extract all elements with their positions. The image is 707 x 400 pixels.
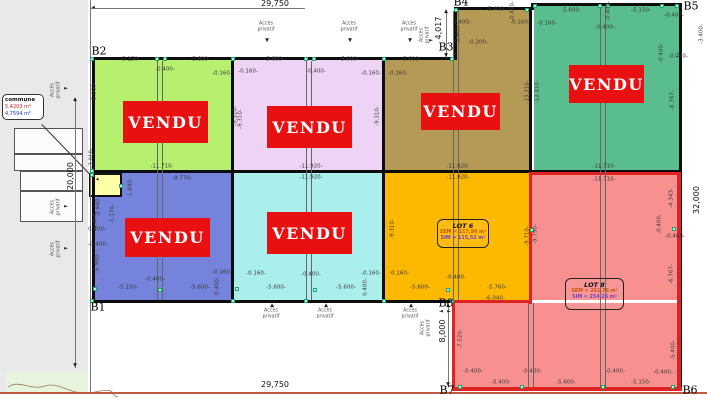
dimension-label: -11.920-: [446, 164, 469, 170]
access-label: Accès privatif: [50, 240, 61, 257]
dimension-label: -11.710-: [150, 164, 173, 170]
dimension-label: -0.400-: [653, 370, 673, 376]
boundary-line: [231, 59, 234, 302]
dimension-label: -5.400-: [486, 7, 506, 13]
access-label-line1: Accès: [400, 21, 417, 27]
boundary-point-label: B5: [683, 1, 698, 12]
dimension-label: -0.160-: [537, 21, 557, 27]
dimension-label: -5.600-: [266, 285, 286, 291]
survey-tick: [446, 288, 450, 292]
survey-tick: [304, 299, 308, 303]
dimension-label: -0.400-: [606, 1, 612, 21]
commune-name: commune: [5, 97, 41, 104]
dimension-label: -0.160-: [361, 271, 381, 277]
dimension-label: -5.400-: [671, 340, 677, 360]
direction-arrow-icon: ▲: [73, 98, 77, 103]
dimension-label: -5.600-: [339, 57, 359, 63]
direction-arrow-icon: ►: [64, 205, 68, 210]
dimension-label: -4.343-: [669, 188, 675, 208]
direction-arrow-icon: ►: [429, 39, 433, 44]
axis-line: [600, 6, 606, 387]
dimension-label: -0.160-: [361, 71, 381, 77]
access-label: Accès privatif: [316, 308, 333, 319]
dimension-label: -11.710-: [592, 164, 615, 170]
dimension-label: -9.790-: [533, 224, 539, 244]
vendu-label: VENDU: [267, 212, 352, 254]
access-label: Accès privatif: [262, 308, 279, 319]
access-label: Accès privatif: [420, 319, 431, 336]
dimension-label: -0.400-: [510, 1, 516, 21]
dimension-label: -0.400-: [446, 275, 466, 281]
direction-arrow-icon: ▲: [409, 304, 413, 309]
survey-tick: [520, 385, 524, 389]
lot8-boundary-line: [677, 172, 681, 391]
dimension-label: -0.160-: [510, 20, 530, 26]
boundary-point-label: B4: [453, 0, 468, 8]
dimension-label: -0.400-: [664, 13, 684, 19]
overall-dimension-label: 29,750: [261, 381, 289, 389]
survey-tick: [525, 8, 529, 12]
direction-arrow-icon: ◄: [91, 6, 95, 11]
access-label-line2: privatif: [56, 198, 62, 215]
dimension-label: -0.160-: [238, 69, 258, 75]
survey-tick: [93, 287, 97, 291]
access-label-line1: Accès: [50, 81, 56, 98]
dimension-label: -0.160-: [212, 270, 232, 276]
dimension-label: -1.170-: [110, 204, 116, 224]
dimension-label: -9.310-: [375, 106, 381, 126]
dimension-label: -6.040-: [485, 296, 505, 302]
survey-tick: [119, 184, 123, 188]
dimension-label: -5.600-: [556, 380, 576, 386]
access-label-line2: privatif: [426, 319, 432, 336]
axis-line: [157, 61, 163, 300]
dimension-label: -0.400-: [522, 369, 542, 375]
dimension-label: -5.900-: [92, 82, 98, 102]
dimension-label: 0.400-: [363, 278, 369, 296]
dimension-label: -0.400-: [301, 272, 321, 278]
dimension-label: -13.310-: [535, 80, 541, 103]
vendu-label: VENDU: [569, 65, 644, 103]
survey-tick: [155, 57, 159, 61]
lot-label: LOT 6 SEM = 117,96 m² SIM = 115,52 m²: [437, 219, 489, 248]
direction-arrow-icon: ▲: [444, 10, 448, 15]
access-label: Accès privatif: [257, 21, 274, 32]
dimension-label: -0.200-: [468, 40, 488, 46]
dimension-label: -11.920-: [299, 164, 322, 170]
commune-area-blue: 4,7594 m²: [5, 111, 41, 118]
dimension-label: -5.600-: [410, 285, 430, 291]
parcel-red-lower[interactable]: [455, 303, 677, 387]
access-label-line1: Accès: [419, 26, 425, 43]
direction-arrow-icon: ▼: [265, 39, 269, 44]
dimension-label: -9.310-: [390, 219, 396, 239]
dimension-label: -6.767-: [669, 264, 675, 284]
dimension-label: -0.400-: [155, 67, 175, 73]
direction-arrow-icon: ▼: [348, 39, 352, 44]
survey-tick: [672, 227, 676, 231]
lot8-boundary-line: [452, 300, 455, 391]
access-label-line2: privatif: [56, 240, 62, 257]
survey-tick: [533, 4, 537, 8]
dimension-label: -7.520-: [458, 329, 464, 349]
survey-tick: [235, 287, 239, 291]
dimension-label: -0.160-: [212, 71, 232, 77]
dimension-label: -5.600-: [561, 8, 581, 14]
survey-tick: [231, 299, 235, 303]
lot8-boundary-line: [452, 387, 682, 391]
dimension-label: -0.400-: [668, 54, 688, 60]
survey-tick: [90, 173, 94, 177]
dimension-label: -3.600-: [456, 24, 462, 44]
dimension-label: -5.400-: [491, 380, 511, 386]
dimension-label: -9.310-: [238, 109, 244, 129]
dimension-label: -0.400-: [605, 369, 625, 375]
dimension-line: [90, 8, 305, 9]
survey-tick: [382, 299, 386, 303]
access-label: Accès privatif: [50, 198, 61, 215]
survey-tick: [90, 57, 94, 61]
overall-dimension-label: 32,000: [693, 186, 701, 214]
access-label-line2: privatif: [262, 314, 279, 320]
survey-tick: [304, 57, 308, 61]
dimension-label: -0.400-: [88, 242, 108, 248]
access-label-line1: Accès: [50, 240, 56, 257]
dimension-label: -5.600-: [190, 285, 210, 291]
survey-tick: [312, 57, 316, 61]
access-label-line2: privatif: [340, 27, 357, 33]
access-label-line1: Accès: [401, 308, 418, 314]
dimension-label: -11.710-: [592, 177, 615, 183]
boundary-point-label: B1: [90, 302, 105, 313]
dimension-label: -5.150-: [118, 285, 138, 291]
vendu-label: VENDU: [125, 218, 210, 257]
access-label-line1: Accès: [316, 308, 333, 314]
overall-dimension-label: 4,017: [435, 17, 443, 40]
survey-tick: [163, 57, 167, 61]
lot-title: LOT 6: [439, 222, 487, 230]
axis-line: [453, 11, 459, 300]
dimension-label: -5.600-: [264, 57, 284, 63]
vendu-label: VENDU: [267, 106, 352, 148]
direction-arrow-icon: ▼: [444, 54, 448, 59]
subdivision-plan: VENDUVENDUVENDUVENDUVENDUVENDU LOT 6 SEM…: [0, 0, 707, 400]
boundary-point-label: B6: [682, 385, 697, 396]
access-label: Accès privatif: [401, 308, 418, 319]
lot-title: LOT 8: [567, 281, 622, 289]
dimension-label: -3.400-: [699, 24, 705, 44]
dimension-line: [448, 304, 449, 387]
vendu-label: VENDU: [421, 93, 500, 130]
dimension-label: -5.600-: [190, 57, 210, 63]
survey-tick: [231, 57, 235, 61]
access-label-line1: Accès: [340, 21, 357, 27]
dimension-label: -5.150-: [631, 8, 651, 14]
dimension-label: -0.400-: [463, 369, 483, 375]
dimension-label: -9.710-: [525, 226, 531, 246]
dimension-label: -5.600-: [401, 57, 421, 63]
lot-sim-area: SIM = 115,52 m²: [439, 236, 487, 242]
boundary-point-label: B2: [91, 46, 106, 57]
direction-arrow-icon: ▼: [408, 39, 412, 44]
dimension-label: -5.150-: [120, 57, 140, 63]
direction-arrow-icon: ▲: [446, 304, 450, 309]
dimension-label: -8.770-: [172, 176, 192, 182]
terrain-sketch-line: [0, 375, 120, 400]
commune-callout: commune 5.4203 m² 4,7594 m²: [2, 94, 44, 120]
direction-arrow-icon: ►: [447, 310, 451, 315]
dimension-label: -13.310-: [525, 80, 531, 103]
dimension-label: -0.400-: [659, 43, 665, 63]
access-label-line2: privatif: [401, 314, 418, 320]
survey-tick: [450, 57, 454, 61]
survey-tick: [454, 8, 458, 12]
direction-arrow-icon: ►: [64, 87, 68, 92]
direction-arrow-icon: ▲: [324, 304, 328, 309]
access-label-line1: Accès: [50, 198, 56, 215]
access-label: Accès privatif: [400, 21, 417, 32]
parcel-tan-ext[interactable]: [457, 10, 529, 62]
survey-tick: [671, 385, 675, 389]
vendu-label: VENDU: [123, 101, 208, 143]
lot-sim-area: SIM = 254,26 m²: [567, 295, 622, 301]
dimension-label: -11.920-: [299, 175, 322, 181]
access-label-line1: Accès: [420, 319, 426, 336]
survey-tick: [382, 57, 386, 61]
dimension-line: [0, 392, 707, 394]
direction-arrow-icon: ▼: [73, 364, 77, 369]
lot-label: LOT 8 SEM = 261,76 m² SIM = 254,26 m²: [565, 278, 624, 310]
access-label: Accès privatif: [340, 21, 357, 32]
dimension-label: -0.400-: [657, 214, 663, 234]
dimension-label: -0.160-: [246, 271, 266, 277]
overall-dimension-label: 20,000: [67, 162, 75, 190]
dimension-label: 0.400-: [88, 227, 106, 233]
direction-arrow-icon: ►: [64, 247, 68, 252]
survey-tick: [158, 288, 162, 292]
dimension-label: -0.400-: [145, 277, 165, 283]
dimension-label: -0.160-: [388, 71, 408, 77]
survey-tick: [601, 385, 605, 389]
overall-dimension-label: 8,000: [439, 320, 447, 343]
dimension-label: -5.900-: [95, 253, 101, 273]
dimension-label: -0.400-: [306, 69, 326, 75]
access-label-line2: privatif: [316, 314, 333, 320]
dimension-label: -3.010-: [89, 148, 95, 168]
survey-tick: [313, 288, 317, 292]
dimension-line: [75, 98, 76, 368]
dimension-label: -0.400-: [665, 234, 685, 240]
access-label-line2: privatif: [400, 27, 417, 33]
access-label-line2: privatif: [56, 81, 62, 98]
dimension-label: -5.150-: [631, 380, 651, 386]
direction-arrow-icon: ◄: [439, 310, 443, 315]
survey-tick: [598, 4, 602, 8]
direction-arrow-icon: ▲: [270, 304, 274, 309]
dimension-label: -0.400-: [595, 25, 615, 31]
access-label-line1: Accès: [257, 21, 274, 27]
dimension-label: -0.160-: [389, 271, 409, 277]
dimension-label: -1.840-: [128, 178, 134, 198]
boundary-point-label: B3: [438, 42, 453, 53]
access-label: Accès privatif: [50, 81, 61, 98]
dimension-label: 0.400-: [215, 277, 221, 295]
access-label-line1: Accès: [262, 308, 279, 314]
access-label-line2: privatif: [257, 27, 274, 33]
dimension-label: -6.767-: [670, 90, 676, 110]
direction-arrow-icon: ▼: [446, 383, 450, 388]
survey-tick: [458, 385, 462, 389]
dimension-label: -11.920-: [446, 175, 469, 181]
survey-tick: [675, 4, 679, 8]
boundary-line: [382, 59, 385, 302]
dimension-label: -5.760-: [487, 285, 507, 291]
dimension-label: -5.600-: [336, 285, 356, 291]
overall-dimension-label: 29,750: [261, 0, 289, 8]
survey-tick: [660, 4, 664, 8]
